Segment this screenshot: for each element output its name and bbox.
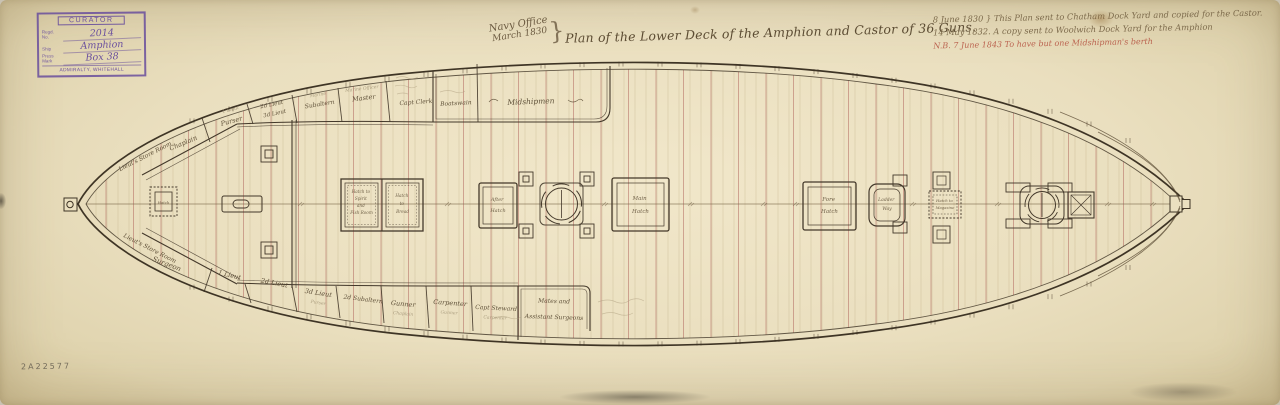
- hatch-label-line: Spirit: [355, 196, 367, 201]
- ship-plan-document: CURATOR Regd. No. 2014 Ship Amphion Pres…: [0, 0, 1280, 405]
- hatch-label-line: After: [490, 197, 504, 203]
- fore-mast-partners: [1006, 182, 1072, 228]
- hatch-label-main-hatch: Main Hatch: [631, 196, 649, 215]
- hatch-label-line: Hatch to: [351, 189, 371, 194]
- cabin-label-3d-lieut: 3d Lieut: [304, 287, 333, 299]
- hatch-label-line: Hatch: [489, 208, 505, 214]
- hatch-label-line: Hatch to: [935, 198, 953, 203]
- cabin-label-chaplain: Chaplain: [168, 134, 198, 153]
- hatch-label-line: Hatch: [820, 209, 838, 215]
- cabin-label-gunner: Gunner: [391, 299, 417, 309]
- bow-stem: [1170, 196, 1190, 212]
- cabin-label-subaltern: Subaltern: [304, 99, 335, 111]
- hatch-label-spirit-right: Hatch to Bread: [394, 193, 409, 214]
- hatch-label-line: Hatch: [394, 193, 408, 198]
- hatch-label-line: Bread: [395, 209, 409, 214]
- cabin-label-mates-line1: Mates and: [537, 297, 570, 305]
- hatch-label-line: to: [400, 201, 405, 206]
- cabin-pencil-gunner: Gunner: [440, 309, 458, 316]
- ship-plan-svg: Lieut's Store Room Lieut's Store Room Ch…: [0, 0, 1280, 405]
- after-hatch: [479, 183, 517, 228]
- pencil-squiggles: [395, 77, 644, 319]
- deck-planks: [96, 60, 1174, 350]
- aft-scuttle-pair: [261, 146, 277, 258]
- hatch-label-aft-scuttle: Hatch: [157, 200, 170, 205]
- cabin-label-3d-lieut-top: 3d Lieut: [263, 109, 288, 120]
- hatch-label-line: and: [357, 203, 365, 208]
- hatch-label-line: Way: [882, 206, 892, 212]
- hatch-label-line: Magazine: [935, 205, 956, 210]
- cabin-pencil-purser: Purser: [309, 299, 327, 308]
- hatch-label-line: Fish Room: [349, 210, 373, 215]
- cabin-label-master: Master: [351, 93, 377, 104]
- cabin-label-boatswain: Boatswain: [439, 99, 472, 108]
- cabin-pencil-carpenter: Carpenter: [483, 314, 507, 321]
- cabin-label-midshipmen: Midshipmen: [506, 96, 555, 107]
- cabin-label-capt-clerk: Capt Clerk: [399, 98, 433, 107]
- stern-rudder-head: [64, 198, 77, 211]
- hatch-label-fore-hatch: Fore Hatch: [820, 197, 838, 215]
- hatch-label-line: Fore: [821, 197, 835, 203]
- cabin-label-2d-lieut: 2d Lieut: [259, 276, 289, 289]
- cabin-label-purser: Purser: [219, 114, 244, 128]
- hatch-label-spirit-left: Hatch to Spirit and Fish Room: [349, 189, 373, 215]
- hatch-label-line: Main: [632, 196, 648, 202]
- hatch-label-line: Ladder: [877, 197, 895, 203]
- cabin-label-carpenter: Carpenter: [433, 298, 468, 308]
- cabin-label-capt-steward: Capt Steward: [475, 304, 517, 313]
- cabin-label-mates-line2: Assistant Surgeons: [524, 313, 584, 322]
- cabin-pencil-1-lieut: 1 Lieut: [222, 105, 240, 115]
- cabin-pencil-chaplain: Chaplain: [393, 310, 414, 318]
- hatch-label-ladder-way: Ladder Way: [877, 197, 896, 212]
- main-hatch: [612, 178, 669, 231]
- cabin-label-2d-subaltern: 2d Subaltern: [342, 294, 383, 306]
- hatch-label-line: Hatch: [631, 209, 649, 215]
- fore-scuttle: [1068, 192, 1094, 218]
